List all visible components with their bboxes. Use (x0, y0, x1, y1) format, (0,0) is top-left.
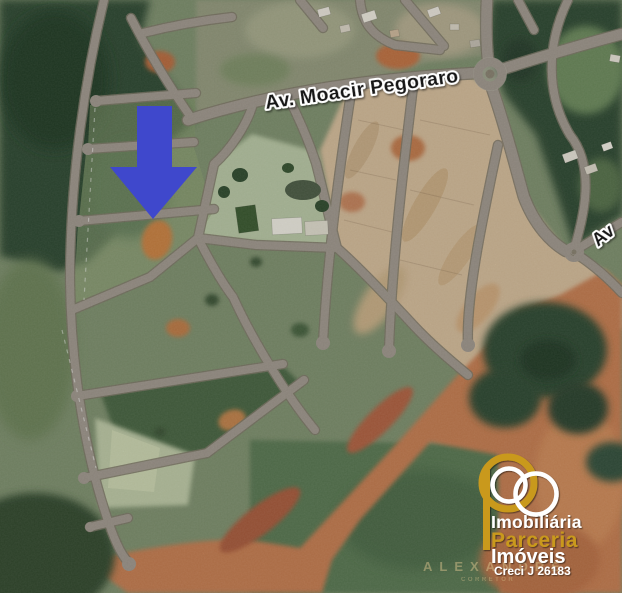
listing-map-image: Av. Moacir Pegoraro Av ALEXANDRE CORRETO… (0, 0, 622, 593)
logo-creci-number: Creci J 26183 (494, 564, 571, 578)
map-canvas[interactable]: Av. Moacir Pegoraro Av ALEXANDRE CORRETO… (0, 0, 622, 593)
